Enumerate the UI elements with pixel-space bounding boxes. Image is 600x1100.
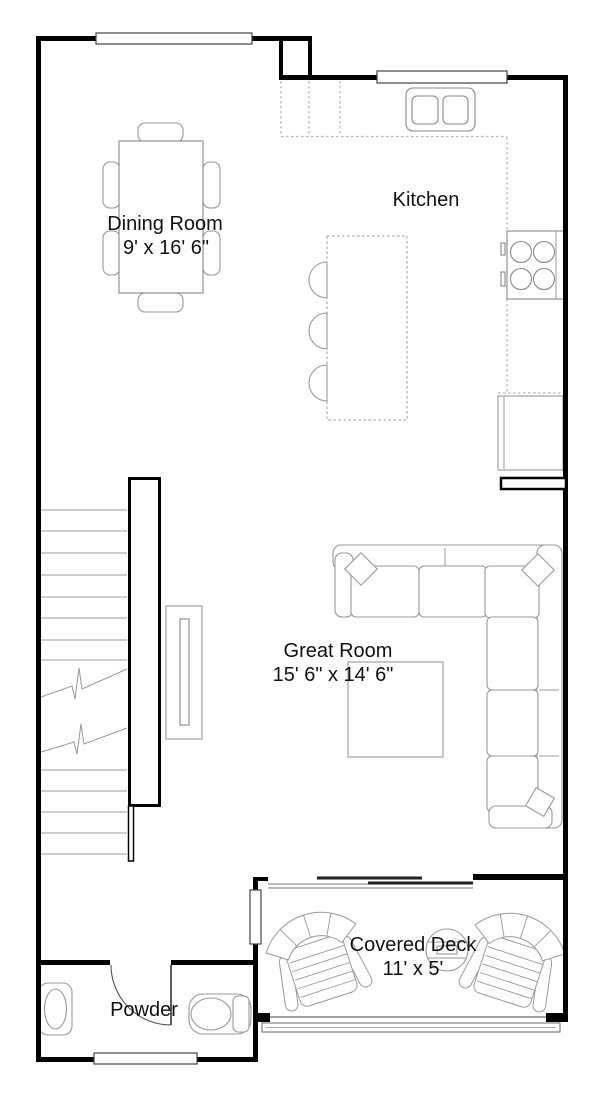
- dining-chair: [203, 162, 220, 208]
- covered-deck-dims: 11' x 5': [383, 957, 444, 981]
- kitchen-end-wall: [501, 478, 566, 489]
- wall-jog: [308, 36, 312, 79]
- window-kitchen: [377, 71, 507, 83]
- deck-chair: [455, 901, 572, 1015]
- floor-plan: Dining Room 9' x 16' 6" Kitchen Great Ro…: [0, 0, 600, 1100]
- stove-cooktop: [501, 231, 565, 299]
- kitchen-island: [309, 236, 407, 420]
- refrigerator: [498, 396, 563, 470]
- bar-stool: [309, 262, 327, 298]
- powder-sink: [39, 983, 72, 1035]
- kitchen-sink: [406, 88, 475, 131]
- great-room-label: Great Room: [284, 639, 393, 663]
- dining-chair: [138, 293, 183, 312]
- stair-wall-stub: [129, 806, 134, 861]
- window-deck: [250, 890, 261, 944]
- staircase: [38, 510, 127, 854]
- powder-room-label: Powder: [110, 998, 178, 1022]
- toilet: [189, 994, 251, 1034]
- railing-post: [256, 1013, 270, 1022]
- dining-chair: [103, 162, 120, 208]
- covered-deck-label: Covered Deck: [350, 933, 477, 957]
- great-room-dims: 15' 6" x 14' 6": [273, 663, 394, 687]
- bar-stool: [309, 365, 327, 401]
- kitchen-label: Kitchen: [393, 188, 460, 212]
- dining-room-dims: 9' x 16' 6": [123, 236, 209, 260]
- wall-jog: [279, 36, 283, 79]
- tv-console: [166, 606, 202, 739]
- sliding-glass-door: [268, 877, 473, 889]
- window-powder: [94, 1053, 197, 1064]
- dining-chair: [103, 231, 120, 275]
- dining-room-label: Dining Room: [107, 212, 223, 236]
- railing-post: [546, 1013, 568, 1022]
- dining-chair: [138, 123, 183, 142]
- stair-break-line: [38, 724, 127, 754]
- bar-stool: [309, 313, 327, 349]
- window-dining: [96, 33, 252, 44]
- stair-wall: [130, 479, 160, 806]
- stair-break-line: [38, 668, 127, 699]
- deck-railing: [256, 1013, 568, 1032]
- floor-plan-drawing: [0, 0, 600, 1100]
- deck-chair: [259, 900, 376, 1014]
